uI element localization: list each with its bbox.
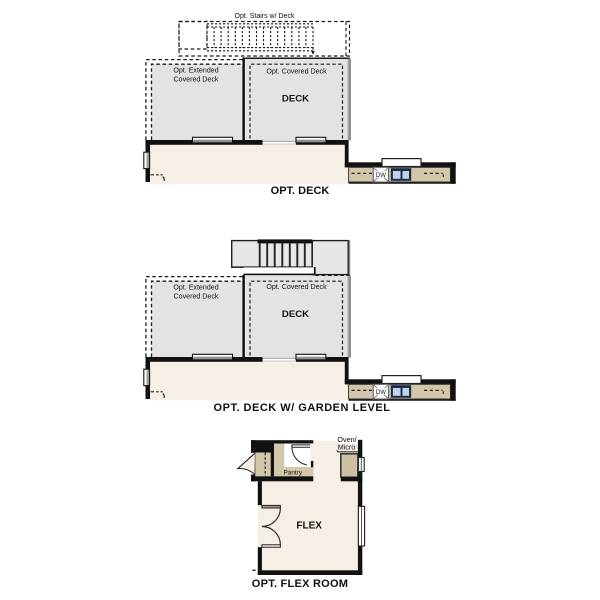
svg-text:Covered Deck: Covered Deck bbox=[174, 76, 219, 84]
svg-text:Micro: Micro bbox=[338, 442, 356, 451]
svg-text:Opt. Extended: Opt. Extended bbox=[173, 284, 218, 292]
svg-text:Opt. Extended: Opt. Extended bbox=[173, 67, 218, 75]
svg-text:FLEX: FLEX bbox=[296, 521, 322, 532]
svg-text:DW: DW bbox=[376, 390, 386, 396]
svg-text:OPT. FLEX ROOM: OPT. FLEX ROOM bbox=[252, 578, 348, 590]
svg-text:OPT. DECK W/ GARDEN LEVEL: OPT. DECK W/ GARDEN LEVEL bbox=[214, 402, 391, 414]
svg-text:Opt. Covered Deck: Opt. Covered Deck bbox=[266, 283, 327, 291]
svg-text:Covered Deck: Covered Deck bbox=[174, 293, 219, 301]
svg-text:Opt. Covered Deck: Opt. Covered Deck bbox=[266, 68, 327, 76]
svg-text:DECK: DECK bbox=[282, 309, 309, 320]
svg-text:Opt. Stairs w/ Deck: Opt. Stairs w/ Deck bbox=[235, 13, 295, 20]
svg-text:DW: DW bbox=[376, 173, 386, 179]
svg-text:OPT. DECK: OPT. DECK bbox=[271, 185, 330, 197]
svg-text:Pantry: Pantry bbox=[284, 470, 303, 477]
svg-text:DECK: DECK bbox=[282, 94, 309, 105]
